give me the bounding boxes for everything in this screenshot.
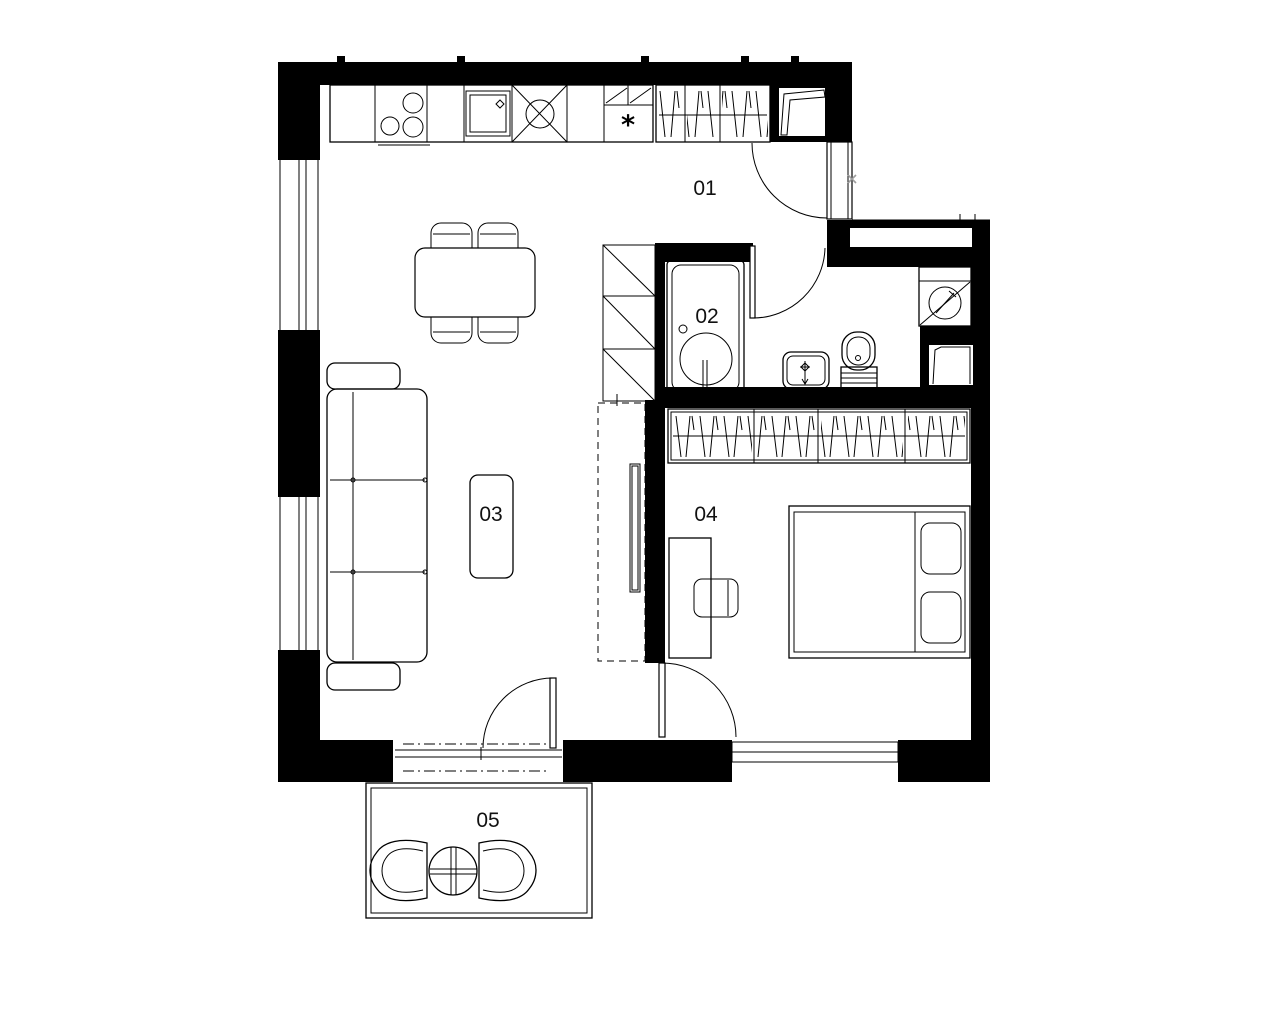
balcony-chair-icon — [370, 840, 427, 900]
wall-bottom-left — [278, 740, 393, 782]
tv-unit — [598, 403, 645, 661]
desk-chair-icon — [694, 579, 738, 617]
wardrobe — [668, 409, 970, 463]
sink-icon — [466, 91, 510, 136]
refrigerator-icon: * — [604, 85, 653, 141]
window-left-lower — [280, 497, 318, 650]
balcony-chair-icon — [479, 840, 536, 900]
coffee-table-icon — [470, 475, 513, 578]
balcony-table-icon — [429, 847, 477, 895]
wall-interior-upper — [655, 243, 665, 400]
bedroom-door-swing — [662, 663, 736, 737]
pillow — [921, 592, 961, 643]
wall-top-right-corner — [832, 62, 852, 142]
toilet-icon — [841, 332, 877, 388]
cooktop-icon — [378, 93, 430, 145]
bathroom-door — [750, 246, 825, 318]
bathtub-icon — [667, 260, 744, 396]
wall-top — [278, 62, 775, 85]
pillow — [921, 523, 961, 574]
bedroom-door — [659, 663, 736, 737]
room-label-04: 04 — [694, 503, 718, 526]
bathroom-door-swing — [753, 248, 825, 318]
entrance-door-swing — [752, 143, 827, 218]
dining-table-icon — [415, 248, 535, 317]
room-label-05: 05 — [476, 809, 499, 832]
balcony-door-leaf — [550, 678, 556, 748]
balcony — [366, 783, 592, 918]
living-room — [327, 223, 645, 771]
room-label-03: 03 — [479, 503, 502, 526]
room-label-02: 02 — [695, 305, 718, 328]
bedroom — [659, 409, 970, 762]
doorway-notch — [818, 243, 827, 263]
wall-shaft-slot — [850, 228, 972, 247]
desk-icon — [669, 538, 738, 658]
double-bed-icon — [789, 506, 970, 658]
floor-plan-canvas: * — [0, 0, 1280, 1024]
wall-bathroom-top — [655, 243, 753, 262]
wall-bottom-middle — [563, 740, 732, 782]
bedroom-window — [732, 742, 898, 762]
dining-set-icon — [415, 223, 535, 343]
balcony-door-swing — [483, 678, 553, 748]
dishwasher-icon — [512, 85, 567, 142]
floor-plan: * — [0, 0, 1280, 1024]
wall-left-pier — [278, 330, 320, 497]
washbasin-icon — [783, 352, 829, 389]
refrigerator-symbol: * — [621, 110, 635, 141]
wall-bathroom-bottom — [662, 387, 990, 408]
wall-left-top — [278, 62, 320, 160]
shaft-niche — [929, 345, 973, 385]
wall-bottom-right — [898, 740, 990, 782]
shelf-column — [603, 245, 655, 406]
wall-interior-lower — [645, 400, 665, 663]
hall-closet — [656, 85, 770, 142]
entry-niche — [779, 88, 825, 136]
wall-closet-end — [770, 85, 775, 142]
window-left-upper — [280, 160, 318, 330]
kitchen-counter: * — [330, 85, 653, 145]
sofa-icon — [327, 363, 427, 690]
water-heater-icon — [919, 267, 971, 326]
balcony-door — [395, 678, 562, 771]
bedroom-door-leaf — [659, 663, 665, 737]
bathroom-door-leaf — [750, 246, 755, 318]
room-label-01: 01 — [693, 177, 716, 200]
